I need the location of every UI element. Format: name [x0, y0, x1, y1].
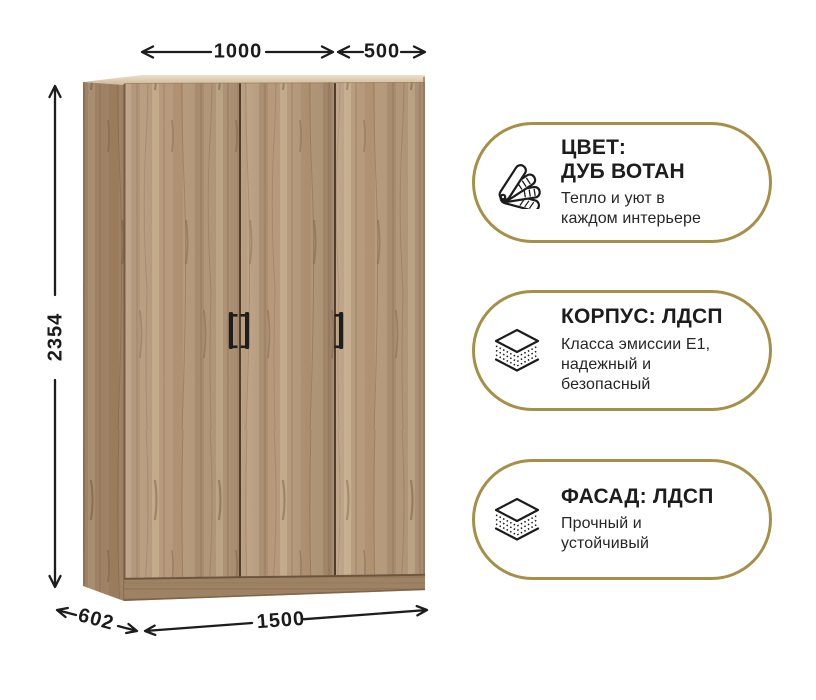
feature-badge-color: ЦВЕТ: ДУБ ВОТАН Тепло и уют в каждом инт…: [472, 122, 772, 243]
dimension-label-top-width: 1000: [214, 41, 263, 64]
feature-badge-body-material: КОРПУС: ЛДСП Класса эмиссии Е1, надежный…: [472, 290, 772, 411]
feature-badge-facade-material: ФАСАД: ЛДСП Прочный и устойчивый: [472, 459, 772, 580]
handle-door-right: [339, 312, 343, 349]
layers-icon: [491, 494, 543, 546]
badge-title: КОРПУС: ЛДСП: [561, 305, 723, 329]
badge-title: ЦВЕТ: ДУБ ВОТАН: [561, 136, 701, 184]
dimension-label-total-width: 1500: [256, 608, 306, 635]
badge-subtitle: Класса эмиссии Е1, надежный и безопасный: [561, 335, 723, 396]
door-middle: [240, 83, 335, 577]
layers-icon: [491, 325, 543, 377]
dimension-label-height: 2354: [45, 313, 68, 362]
color-swatches-icon: [491, 157, 543, 209]
badge-title: ФАСАД: ЛДСП: [561, 485, 714, 509]
badge-subtitle: Тепло и уют в каждом интерьере: [561, 189, 701, 230]
dimension-label-top-right-width: 500: [364, 41, 400, 64]
door-right: [335, 82, 425, 575]
door-left: [124, 83, 240, 578]
handle-door-left: [229, 312, 233, 349]
handle-door-middle: [245, 312, 249, 349]
wardrobe: [83, 75, 425, 601]
product-dimension-infographic: 1000 500 2354 602 1500 ЦВЕТ: ДУБ ВОТАН Т…: [0, 0, 816, 700]
badge-subtitle: Прочный и устойчивый: [561, 514, 714, 555]
